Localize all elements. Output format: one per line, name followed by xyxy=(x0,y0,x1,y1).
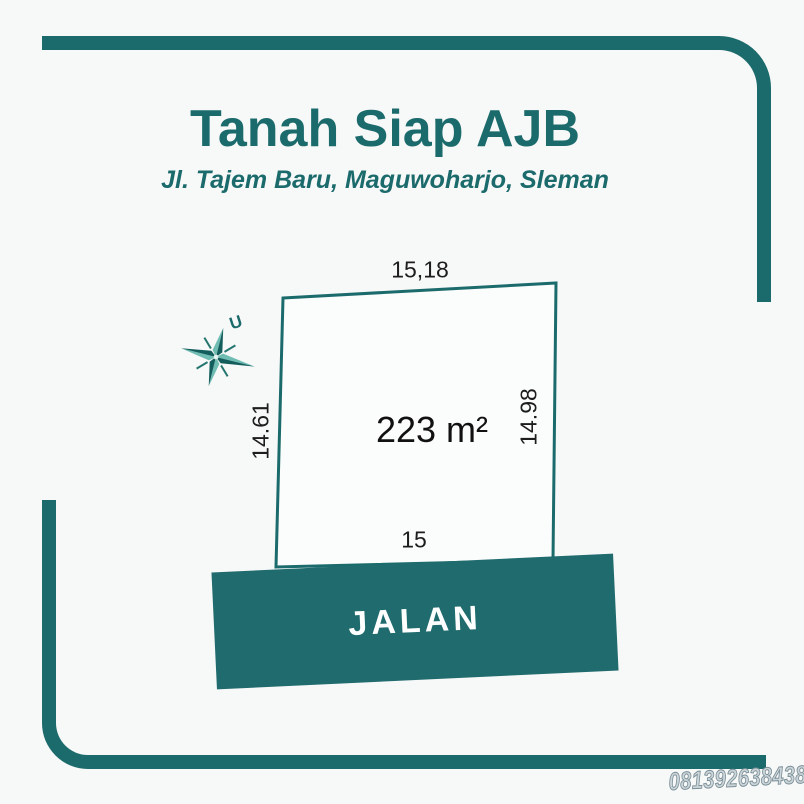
dimension-bottom: 15 xyxy=(401,527,427,554)
road-bar: JALAN xyxy=(211,554,618,690)
road-label: JALAN xyxy=(347,599,482,644)
land-plot-diagram xyxy=(0,0,804,804)
dimension-left: 14.61 xyxy=(248,402,275,460)
dimension-top: 15,18 xyxy=(391,257,449,284)
area-label: 223 m² xyxy=(376,409,488,451)
dimension-right: 14.98 xyxy=(516,388,543,446)
land-sale-flyer: Tanah Siap AJB Jl. Tajem Baru, Maguwohar… xyxy=(0,0,804,804)
